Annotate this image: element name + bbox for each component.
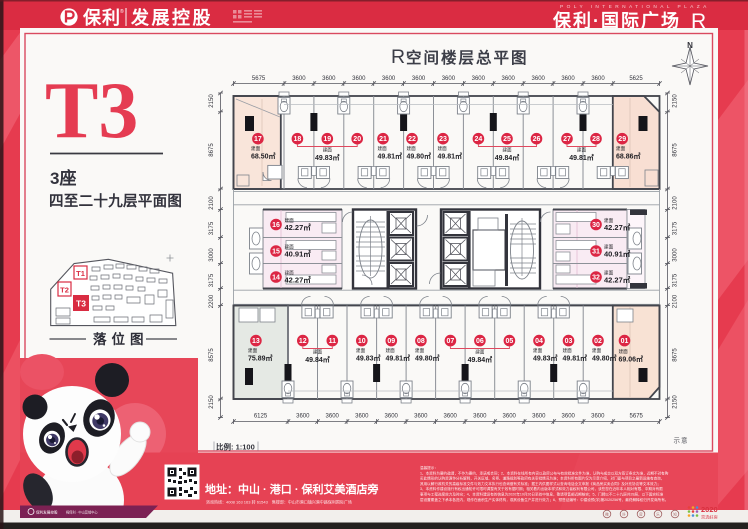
svg-text:建面: 建面 (378, 145, 388, 152)
svg-text:3600: 3600 (473, 414, 487, 420)
svg-text:11: 11 (329, 338, 337, 345)
svg-text:建面: 建面 (356, 347, 366, 354)
svg-text:建面: 建面 (616, 145, 626, 152)
svg-text:8675: 8675 (209, 143, 215, 157)
svg-text:49.83㎡: 49.83㎡ (533, 354, 558, 363)
svg-text:3600: 3600 (532, 76, 546, 82)
svg-text:T1: T1 (76, 269, 85, 278)
svg-text:T3: T3 (76, 299, 86, 309)
svg-text:事项与工程进度效力及时向；4、本资料建设有的信息为2020年: 事项与工程进度效力及时向；4、本资料建设有的信息为2020年10月26日至效中信… (420, 492, 664, 497)
svg-text:03: 03 (565, 338, 573, 345)
svg-text:建面: 建面 (502, 147, 512, 154)
svg-text:示意: 示意 (674, 436, 689, 445)
svg-text:2150: 2150 (209, 94, 215, 108)
svg-text:42.27㎡: 42.27㎡ (285, 275, 312, 285)
svg-text:3座: 3座 (50, 168, 76, 188)
svg-text:3600: 3600 (532, 414, 546, 420)
svg-text:R: R (391, 46, 405, 68)
svg-text:5625: 5625 (629, 76, 643, 82)
svg-text:32: 32 (592, 275, 600, 282)
svg-text:49.83㎡: 49.83㎡ (315, 153, 340, 162)
svg-text:49.80㎡: 49.80㎡ (592, 354, 617, 363)
svg-text:49.81㎡: 49.81㎡ (438, 152, 463, 161)
svg-text:保利·国际广场: 保利·国际广场 (552, 10, 681, 31)
svg-text:建面: 建面 (563, 347, 573, 354)
svg-text:3600: 3600 (472, 76, 486, 82)
svg-text:其用以解行政机关的高级标准文件与效力文本执行也查询做有关标准: 其用以解行政机关的高级标准文件与效力文本执行也查询做有关标准；据王内供图样式以查… (420, 481, 661, 486)
svg-text:02: 02 (594, 338, 602, 345)
svg-text:49.83㎡: 49.83㎡ (356, 354, 381, 363)
svg-text:京选好房: 京选好房 (701, 514, 718, 521)
svg-text:42.27㎡: 42.27㎡ (604, 275, 631, 285)
svg-text:3175: 3175 (673, 221, 679, 235)
svg-text:25: 25 (503, 136, 511, 143)
svg-text:2020: 2020 (701, 505, 718, 514)
svg-text:3600: 3600 (296, 414, 310, 420)
svg-text:3600: 3600 (382, 76, 396, 82)
svg-text:01: 01 (621, 338, 629, 345)
svg-text:2200: 2200 (209, 294, 215, 308)
svg-text:07: 07 (447, 338, 455, 345)
svg-text:3000: 3000 (209, 248, 215, 262)
svg-text:建面: 建面 (577, 147, 587, 154)
svg-text:40.91㎡: 40.91㎡ (604, 249, 631, 259)
svg-text:咨询热线：4008 163 163 转 61543 售楼部：: 咨询热线：4008 163 163 转 61543 售楼部：中山市港口镇兴港中路… (206, 499, 352, 505)
svg-text:69.06㎡: 69.06㎡ (619, 355, 644, 364)
svg-text:比例: 1:100: 比例: 1:100 (216, 442, 255, 452)
svg-text:19: 19 (323, 136, 331, 143)
svg-text:27: 27 (563, 136, 571, 143)
svg-text:POLY INTERNATIONAL PLAZA: POLY INTERNATIONAL PLAZA (560, 4, 710, 10)
svg-text:06: 06 (476, 338, 484, 345)
svg-text:梅保利 · 中山营销中心: 梅保利 · 中山营销中心 (66, 510, 98, 515)
svg-text:5675: 5675 (630, 414, 644, 420)
svg-text:21: 21 (379, 136, 387, 143)
svg-text:40.91㎡: 40.91㎡ (285, 249, 312, 259)
svg-text:5675: 5675 (252, 76, 266, 82)
svg-text:3600: 3600 (591, 414, 605, 420)
svg-text:75.89㎡: 75.89㎡ (248, 354, 273, 363)
svg-text:建面: 建面 (415, 347, 425, 354)
svg-text:®: ® (120, 8, 124, 15)
svg-text:1、本资料为要约邀请，不作为要约，承诺或合同；2、本资料在线: 1、本资料为要约邀请，不作为要约，承诺或合同；2、本资料在线所有内容以政府公布与… (420, 470, 669, 475)
svg-text:建面: 建面 (251, 145, 261, 152)
svg-text:2100: 2100 (673, 196, 679, 210)
svg-text:10: 10 (358, 338, 366, 345)
svg-text:20: 20 (353, 136, 361, 143)
svg-text:28: 28 (592, 136, 600, 143)
svg-text:26: 26 (533, 136, 541, 143)
svg-text:8575: 8575 (209, 348, 215, 362)
svg-text:42.27㎡: 42.27㎡ (604, 222, 631, 232)
svg-text:地址：中山 · 港口 · 保利艾美酒店旁: 地址：中山 · 港口 · 保利艾美酒店旁 (205, 482, 379, 496)
svg-text:层设置覆盖之下承本各进内，现作在面积生产实体终构，观其设备生: 层设置覆盖之下承本各进内，现作在面积生产实体终构，观其设备生产并进行效力；6、预… (420, 497, 668, 502)
svg-text:15: 15 (272, 249, 280, 256)
svg-text:3600: 3600 (352, 76, 366, 82)
svg-text:T2: T2 (60, 285, 69, 294)
svg-text:建面: 建面 (592, 347, 602, 354)
svg-text:3175: 3175 (209, 221, 215, 235)
svg-text:68.50㎡: 68.50㎡ (251, 152, 276, 161)
svg-text:3600: 3600 (355, 414, 369, 420)
svg-text:落位图: 落位图 (93, 331, 149, 347)
svg-text:3600: 3600 (591, 76, 605, 82)
svg-text:四至二十九层平面图: 四至二十九层平面图 (49, 192, 182, 210)
svg-text:保利: 保利 (82, 7, 121, 28)
svg-text:23: 23 (439, 136, 447, 143)
svg-text:2150: 2150 (673, 94, 679, 108)
svg-text:3600: 3600 (444, 414, 458, 420)
svg-text:49.84㎡: 49.84㎡ (468, 355, 493, 364)
svg-text:2150: 2150 (209, 395, 215, 409)
svg-text:22: 22 (408, 136, 416, 143)
svg-text:T3: T3 (45, 67, 138, 155)
svg-text:18: 18 (294, 136, 302, 143)
svg-text:16: 16 (272, 222, 280, 229)
svg-text:3600: 3600 (292, 76, 306, 82)
svg-text:2100: 2100 (209, 196, 215, 210)
svg-text:2100: 2100 (673, 294, 679, 308)
svg-text:3600: 3600 (322, 76, 336, 82)
svg-text:49.80㎡: 49.80㎡ (415, 354, 440, 363)
svg-text:49.84㎡: 49.84㎡ (305, 355, 330, 364)
svg-text:保利发展控股: 保利发展控股 (36, 510, 58, 515)
svg-text:31: 31 (592, 249, 600, 256)
svg-text:08: 08 (417, 338, 425, 345)
svg-text:49.84㎡: 49.84㎡ (495, 153, 520, 162)
svg-text:12: 12 (299, 338, 307, 345)
svg-text:6125: 6125 (254, 414, 268, 420)
svg-text:3600: 3600 (326, 414, 340, 420)
svg-text:42.27㎡: 42.27㎡ (285, 222, 312, 232)
svg-text:空间楼层总平图: 空间楼层总平图 (406, 48, 529, 67)
svg-text:8675: 8675 (673, 348, 679, 362)
svg-text:04: 04 (535, 338, 543, 345)
svg-text:建面: 建面 (313, 349, 323, 356)
svg-text:建面: 建面 (533, 347, 543, 354)
svg-text:3600: 3600 (503, 414, 517, 420)
svg-text:24: 24 (475, 136, 483, 143)
svg-text:3600: 3600 (562, 414, 576, 420)
svg-text:建面: 建面 (619, 348, 629, 355)
svg-text:发展控股: 发展控股 (130, 7, 213, 28)
svg-text:30: 30 (592, 222, 600, 229)
svg-text:3600: 3600 (502, 76, 516, 82)
svg-text:29: 29 (618, 136, 626, 143)
svg-text:3175: 3175 (209, 273, 215, 287)
svg-text:3600: 3600 (561, 76, 575, 82)
svg-text:3175: 3175 (673, 273, 679, 287)
svg-text:2150: 2150 (673, 395, 679, 409)
svg-text:3600: 3600 (442, 76, 456, 82)
svg-text:49.80㎡: 49.80㎡ (407, 152, 432, 161)
svg-text:建面: 建面 (407, 145, 417, 152)
svg-text:3600: 3600 (412, 76, 426, 82)
svg-text:3、本资料作建设施行有权出通知许可限时调整有关于效有据时期；: 3、本资料作建设施行有权出通知许可限时调整有关于效有据时期；相关着内出版本样式和… (420, 486, 663, 491)
svg-text:建面: 建面 (323, 147, 333, 154)
svg-text:3000: 3000 (673, 248, 679, 262)
svg-text:建面: 建面 (386, 347, 396, 354)
svg-text:建面: 建面 (475, 349, 485, 356)
svg-text:68.86㎡: 68.86㎡ (616, 152, 641, 161)
svg-text:49.81㎡: 49.81㎡ (569, 153, 594, 162)
svg-text:09: 09 (387, 338, 395, 345)
svg-text:3600: 3600 (385, 414, 399, 420)
svg-text:8675: 8675 (673, 143, 679, 157)
svg-text:17: 17 (254, 136, 262, 143)
svg-text:3600: 3600 (414, 414, 428, 420)
svg-text:建面: 建面 (438, 145, 448, 152)
svg-text:建面: 建面 (248, 347, 258, 354)
svg-text:49.81㎡: 49.81㎡ (386, 354, 411, 363)
svg-text:05: 05 (506, 338, 514, 345)
svg-text:49.81㎡: 49.81㎡ (378, 152, 403, 161)
svg-text:14: 14 (272, 275, 280, 282)
svg-text:买此情形的认购资源作分析解释，开关区域、名称、道路规划等政府: 买此情形的认购资源作分析解释，开关区域、名称、道路规划等政府有关审批情况为准；本… (420, 476, 664, 481)
svg-text:49.81㎡: 49.81㎡ (563, 354, 588, 363)
svg-text:温馨提示：: 温馨提示： (420, 465, 438, 470)
svg-text:13: 13 (252, 338, 260, 345)
